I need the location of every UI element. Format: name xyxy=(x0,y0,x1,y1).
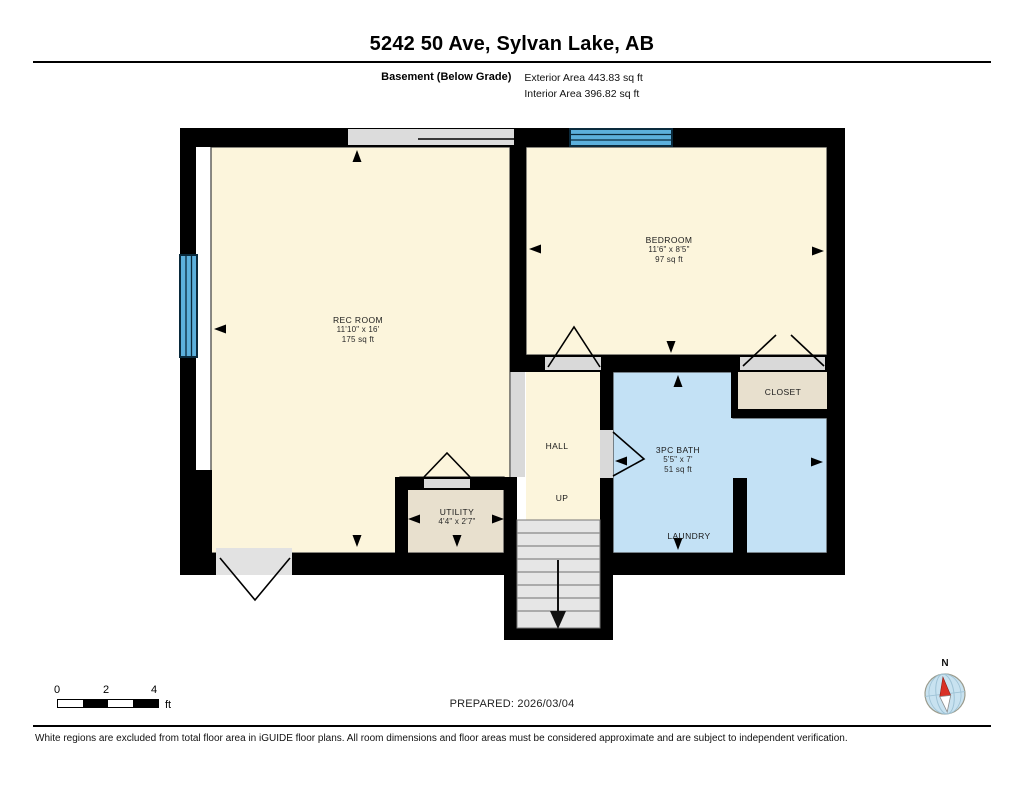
room-dims: 11'10" x 16' xyxy=(333,325,383,335)
floorplan-drawing xyxy=(0,0,1024,791)
room-label-utility: UTILITY 4'4" x 2'7" xyxy=(438,507,475,527)
disclaimer-text: White regions are excluded from total fl… xyxy=(35,733,1004,744)
room-dims: 11'6" x 8'5" xyxy=(646,245,693,255)
room-area: 175 sq ft xyxy=(333,335,383,345)
scale-tick: 2 xyxy=(103,684,109,696)
stairs xyxy=(517,520,600,629)
room-label-rec-room: REC ROOM 11'10" x 16' 175 sq ft xyxy=(333,315,383,345)
room-label-bedroom: BEDROOM 11'6" x 8'5" 97 sq ft xyxy=(646,235,693,265)
compass-north-label: N xyxy=(919,658,971,669)
stairs-up-label: UP xyxy=(556,493,569,503)
room-name: REC ROOM xyxy=(333,315,383,325)
compass-icon xyxy=(919,669,971,719)
room-label-laundry: LAUNDRY xyxy=(667,531,710,541)
room-name: 3PC BATH xyxy=(656,445,700,455)
room-label-hall: HALL xyxy=(546,441,569,451)
room-area: 51 sq ft xyxy=(656,465,700,475)
room-label-closet: CLOSET xyxy=(765,387,801,397)
scale-tick: 0 xyxy=(54,684,60,696)
room-dims: 4'4" x 2'7" xyxy=(438,517,475,527)
room-label-bath: 3PC BATH 5'5" x 7' 51 sq ft xyxy=(656,445,700,475)
window-left-icon xyxy=(180,255,197,357)
sliding-window-opening xyxy=(348,129,514,146)
prepared-date: PREPARED: 2026/03/04 xyxy=(0,698,1024,710)
room-name: LAUNDRY xyxy=(667,531,710,541)
floorplan-page: 5242 50 Ave, Sylvan Lake, AB Basement (B… xyxy=(0,0,1024,791)
room-dims: 5'5" x 7' xyxy=(656,455,700,465)
room-area: 97 sq ft xyxy=(646,255,693,265)
room-name: BEDROOM xyxy=(646,235,693,245)
room-name: CLOSET xyxy=(765,387,801,397)
room-name: UTILITY xyxy=(438,507,475,517)
window-top-icon xyxy=(570,129,672,146)
scale-tick: 4 xyxy=(151,684,157,696)
room-name: HALL xyxy=(546,441,569,451)
compass: N xyxy=(919,658,971,724)
footer-divider xyxy=(33,725,991,727)
room-name: UP xyxy=(556,493,569,503)
